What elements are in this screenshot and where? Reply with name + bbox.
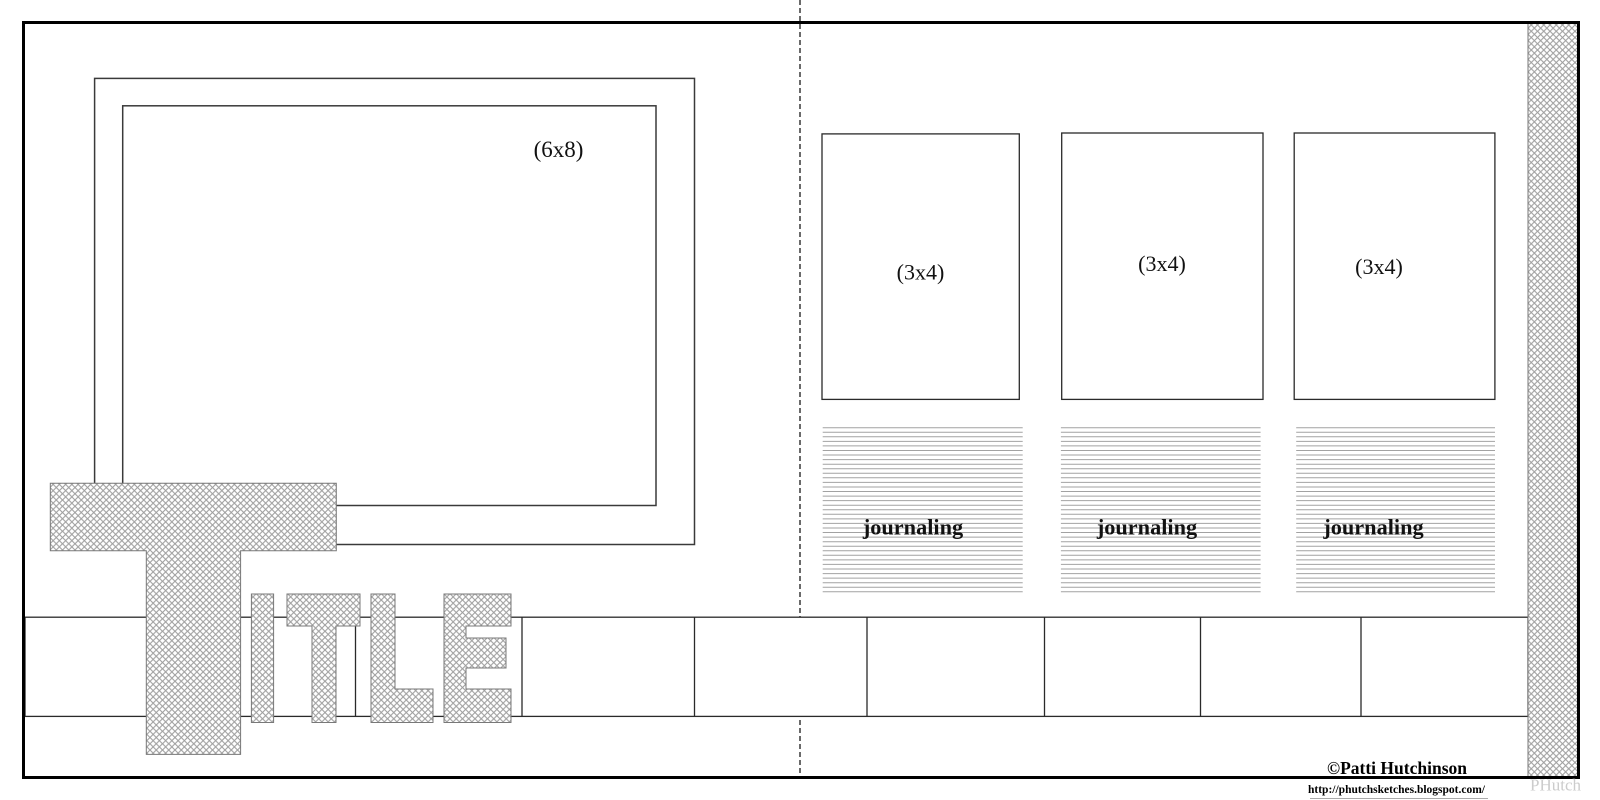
svg-text:PHutch: PHutch: [1530, 776, 1582, 795]
svg-text:(3x4): (3x4): [1355, 254, 1403, 279]
svg-text:©Patti Hutchinson: ©Patti Hutchinson: [1327, 758, 1467, 778]
svg-text:(3x4): (3x4): [1138, 251, 1186, 276]
svg-text:(6x8): (6x8): [534, 137, 584, 162]
svg-text:journaling: journaling: [1322, 515, 1423, 540]
svg-text:http://phutchsketches.blogspot: http://phutchsketches.blogspot.com/: [1308, 784, 1486, 796]
svg-text:journaling: journaling: [862, 515, 963, 540]
svg-text:journaling: journaling: [1096, 515, 1197, 540]
svg-text:(3x4): (3x4): [897, 260, 945, 285]
